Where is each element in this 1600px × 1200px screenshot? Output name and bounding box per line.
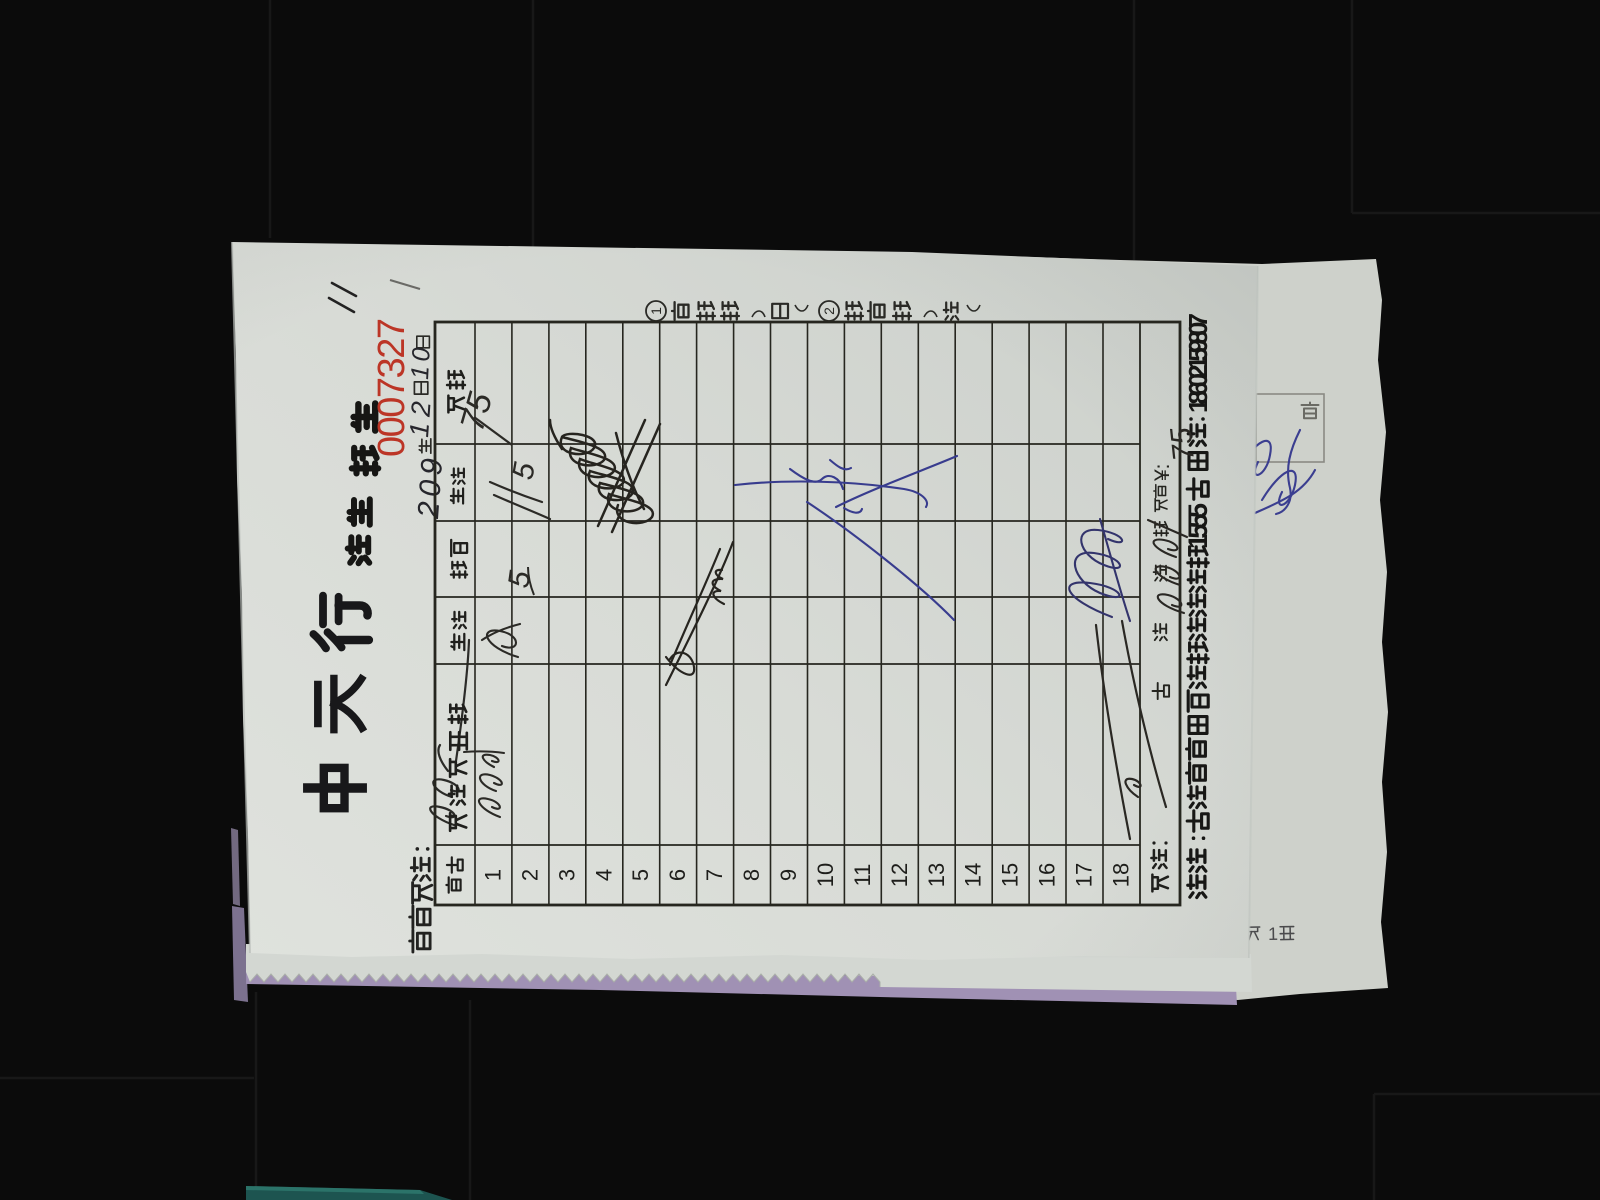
svg-text:12: 12: [887, 863, 912, 887]
svg-text:2: 2: [821, 307, 837, 315]
svg-text:2: 2: [517, 869, 542, 881]
svg-text:6: 6: [665, 869, 690, 881]
svg-text:9: 9: [776, 869, 801, 881]
svg-text:17: 17: [1072, 863, 1097, 887]
svg-text:11: 11: [850, 864, 875, 887]
svg-text:18602159807: 18602159807: [1183, 313, 1213, 413]
svg-text:1555: 1555: [1183, 503, 1213, 549]
svg-text:5: 5: [628, 869, 653, 881]
svg-text:75: 75: [1165, 426, 1201, 463]
svg-text:1: 1: [481, 869, 506, 881]
svg-text:10: 10: [813, 863, 838, 887]
svg-text:8: 8: [739, 869, 764, 881]
svg-text:4: 4: [591, 869, 616, 881]
svg-text:1: 1: [648, 307, 664, 315]
svg-text:18: 18: [1109, 863, 1134, 887]
svg-text:7: 7: [702, 869, 727, 881]
svg-text:¥:: ¥:: [1151, 463, 1174, 482]
svg-text:1: 1: [1268, 924, 1278, 944]
svg-text:3: 3: [554, 869, 579, 881]
svg-text:13: 13: [924, 863, 949, 887]
svg-text:15: 15: [998, 863, 1023, 887]
svg-text:14: 14: [961, 863, 986, 887]
svg-text:209: 209: [412, 457, 449, 520]
svg-text:16: 16: [1035, 863, 1060, 887]
